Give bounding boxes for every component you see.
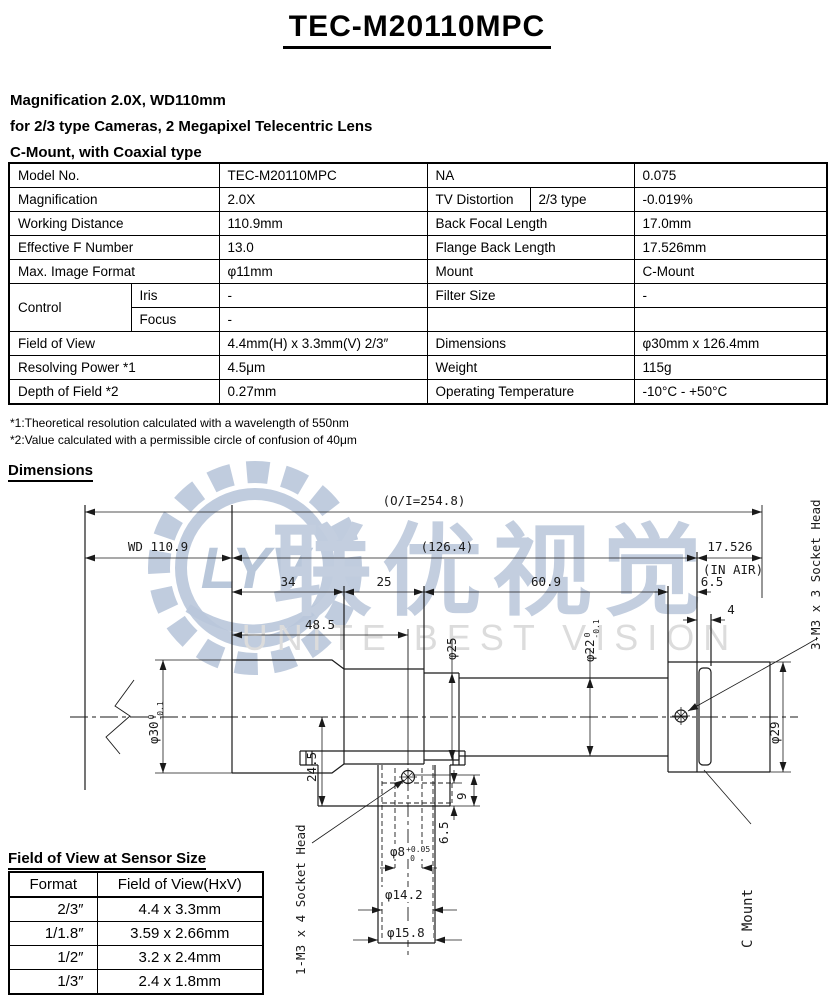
label-cmount: C Mount [740, 889, 756, 948]
dim-9: 9 [454, 792, 469, 800]
coax-port-flange [300, 751, 465, 765]
dim-phi158: φ15.8 [387, 925, 425, 940]
dim-wd: WD 110.9 [128, 539, 188, 554]
rear-screw-hatch [672, 707, 690, 725]
dim-609: 60.9 [531, 574, 561, 589]
dim-4: 4 [727, 602, 735, 617]
dim-34: 34 [280, 574, 295, 589]
fov-table: Format Field of View(HxV) 2/3″ 4.4 x 3.3… [8, 871, 264, 995]
fov-value: 4.4 x 3.3mm [97, 897, 263, 922]
watermark-chinese-text: 联优视觉 [272, 516, 712, 628]
dim-phi29: φ29 [767, 721, 782, 744]
fov-format: 2/3″ [9, 897, 97, 922]
fov-format: 1/2″ [9, 946, 97, 970]
fov-value: 3.2 x 2.4mm [97, 946, 263, 970]
fov-header-value: Field of View(HxV) [97, 872, 263, 897]
fov-heading: Field of View at Sensor Size [8, 850, 206, 867]
dim-oi: (O/I=254.8) [383, 493, 466, 508]
dim-phi30: φ300-0.1 [146, 701, 165, 744]
dim-245: 24.5 [304, 752, 319, 782]
barrel-top-edge [232, 660, 424, 669]
leader-cmount [704, 770, 751, 824]
fov-header-row: Format Field of View(HxV) [9, 872, 263, 897]
fov-row: 1/3″ 2.4 x 1.8mm [9, 970, 263, 995]
fov-row: 1/2″ 3.2 x 2.4mm [9, 946, 263, 970]
label-socket1: 1-M3 x 4 Socket Head [293, 824, 308, 975]
fov-row: 1/1.8″ 3.59 x 2.66mm [9, 922, 263, 946]
cmount-thread [699, 668, 711, 765]
fov-row: 2/3″ 4.4 x 3.3mm [9, 897, 263, 922]
dim-25: 25 [376, 574, 391, 589]
dim-phi8: φ8+0.050 [390, 844, 430, 863]
dim-126: (126.4) [421, 539, 474, 554]
fov-header-format: Format [9, 872, 97, 897]
coax-port-block [318, 765, 450, 806]
dim-phi142: φ14.2 [385, 887, 423, 902]
dim-ffd: 17.526 [707, 539, 752, 554]
fov-format: 1/1.8″ [9, 922, 97, 946]
fov-format: 1/3″ [9, 970, 97, 995]
datasheet-page: TEC-M20110MPC Magnification 2.0X, WD110m… [0, 0, 834, 1003]
dim-65-port: 6.5 [436, 821, 451, 844]
dim-65: 6.5 [701, 574, 724, 589]
dim-phi25: φ25 [444, 637, 459, 660]
leader-socket1 [312, 780, 404, 843]
label-socket3: 3-M3 x 3 Socket Head [808, 499, 823, 650]
dim-485: 48.5 [305, 617, 335, 632]
fov-value: 3.59 x 2.66mm [97, 922, 263, 946]
fov-value: 2.4 x 1.8mm [97, 970, 263, 995]
